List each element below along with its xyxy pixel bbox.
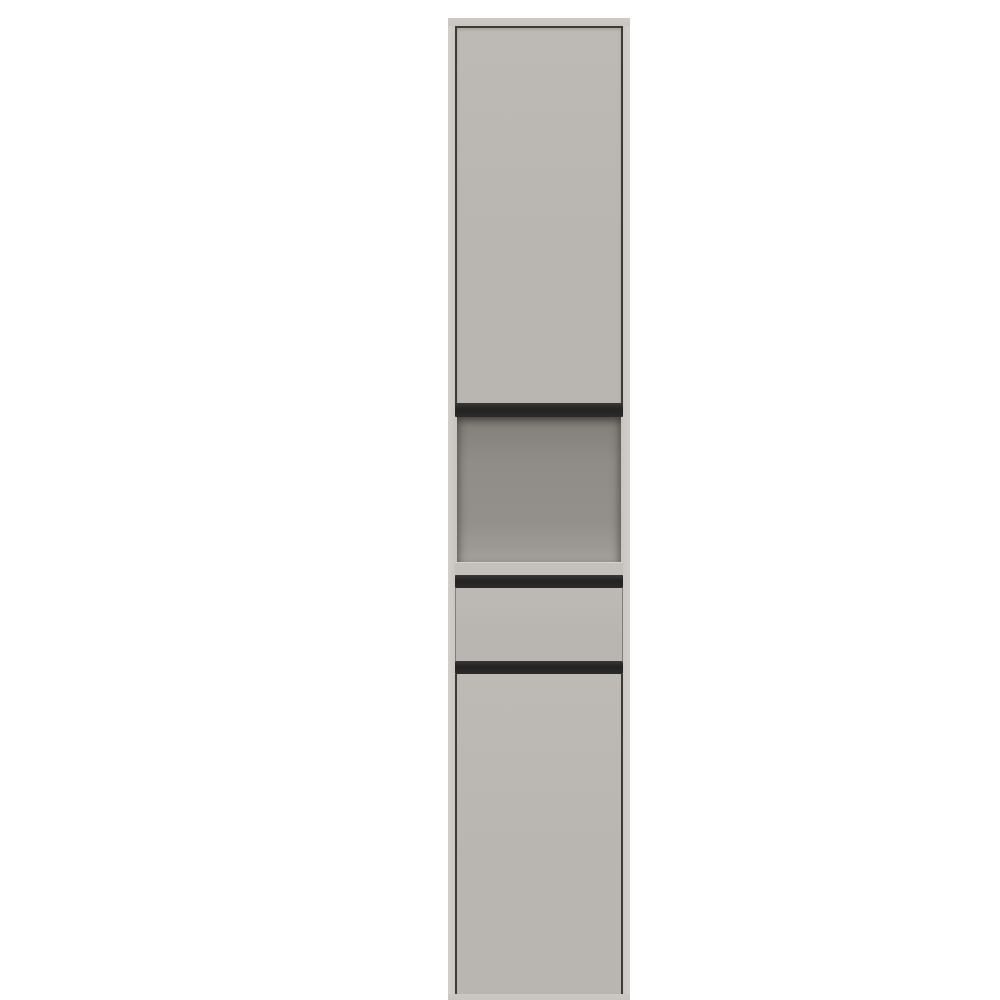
drawer-front [455, 588, 623, 661]
plinth [448, 994, 630, 1000]
upper-door-handle-strip [455, 403, 623, 417]
shelf-front-edge [455, 562, 623, 575]
lower-door-handle-strip [455, 661, 623, 674]
tall-storage-cabinet [448, 18, 630, 1000]
cabinet-top-edge [448, 18, 630, 26]
drawer-handle-strip [455, 575, 623, 588]
lower-door [455, 674, 623, 996]
open-shelf-niche [457, 417, 621, 562]
upper-door [455, 26, 623, 405]
